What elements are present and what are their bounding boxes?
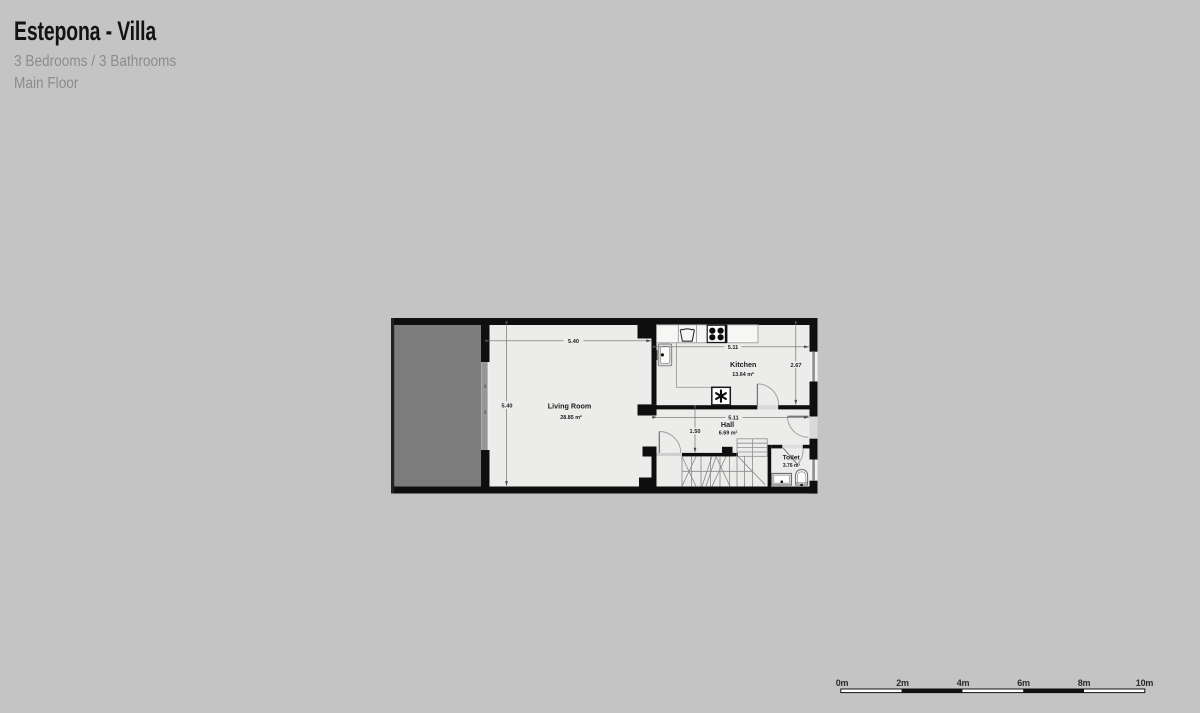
svg-text:5.40: 5.40 [502,403,513,409]
svg-text:4m: 4m [957,678,970,688]
svg-text:8m: 8m [1078,678,1091,688]
svg-text:13.64 m²: 13.64 m² [732,372,754,378]
svg-text:5.11: 5.11 [728,345,739,351]
svg-text:2m: 2m [896,678,909,688]
svg-text:Toilet: Toilet [783,454,801,461]
svg-text:Living Room: Living Room [548,402,592,411]
svg-text:6m: 6m [1017,678,1030,688]
svg-text:Hall: Hall [721,420,734,429]
svg-text:Kitchen: Kitchen [730,360,756,369]
svg-text:5.40: 5.40 [568,339,579,345]
svg-text:28.85 m²: 28.85 m² [560,415,582,421]
svg-text:6.69 m²: 6.69 m² [719,430,738,436]
svg-text:3.76 m²: 3.76 m² [783,463,801,469]
svg-text:10m: 10m [1136,678,1154,688]
svg-text:0m: 0m [836,678,849,688]
svg-text:2.67: 2.67 [791,363,802,369]
svg-text:1.50: 1.50 [690,429,701,435]
